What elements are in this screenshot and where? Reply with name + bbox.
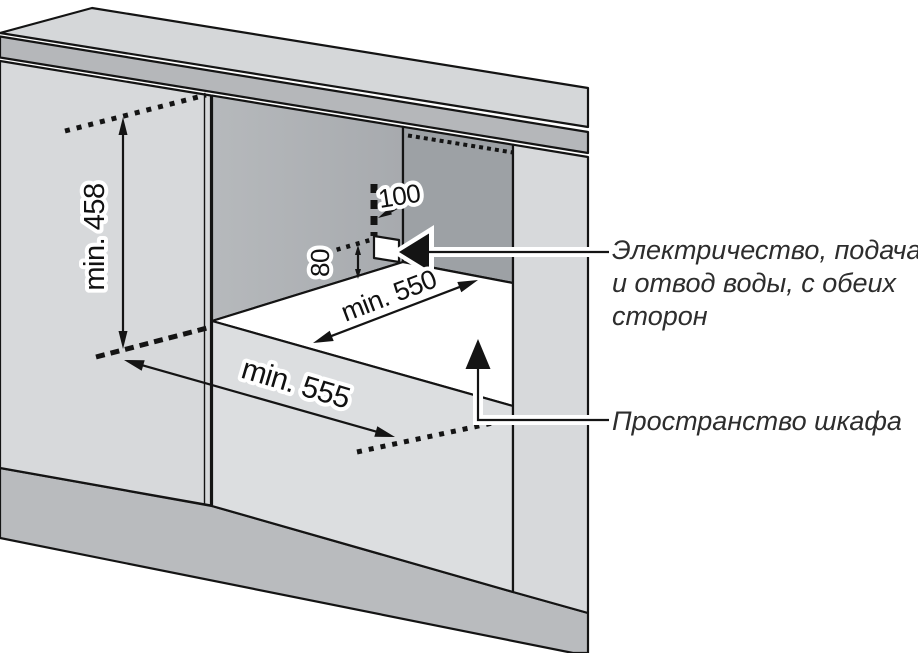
connection-area <box>374 236 399 262</box>
callout-texts: Электричество, подача и отвод воды, с об… <box>612 235 918 436</box>
right-cabinet-panel <box>513 145 588 613</box>
cabinet-space-callout: Пространство шкафа <box>612 406 902 436</box>
diagram-canvas: min. 458 min. 555 min. 550 100 80 Электр… <box>0 0 918 653</box>
cabinet-structure <box>0 8 588 653</box>
label-niche-height: min. 458 <box>79 183 111 290</box>
installation-diagram: min. 458 min. 555 min. 550 100 80 Электр… <box>0 0 918 653</box>
label-connection-80: 80 <box>305 249 335 277</box>
utilities-callout-line2: и отвод воды, с обеих <box>612 268 898 298</box>
utilities-callout-line3: сторон <box>612 301 708 331</box>
utilities-callout-line1: Электричество, подача <box>612 235 918 265</box>
